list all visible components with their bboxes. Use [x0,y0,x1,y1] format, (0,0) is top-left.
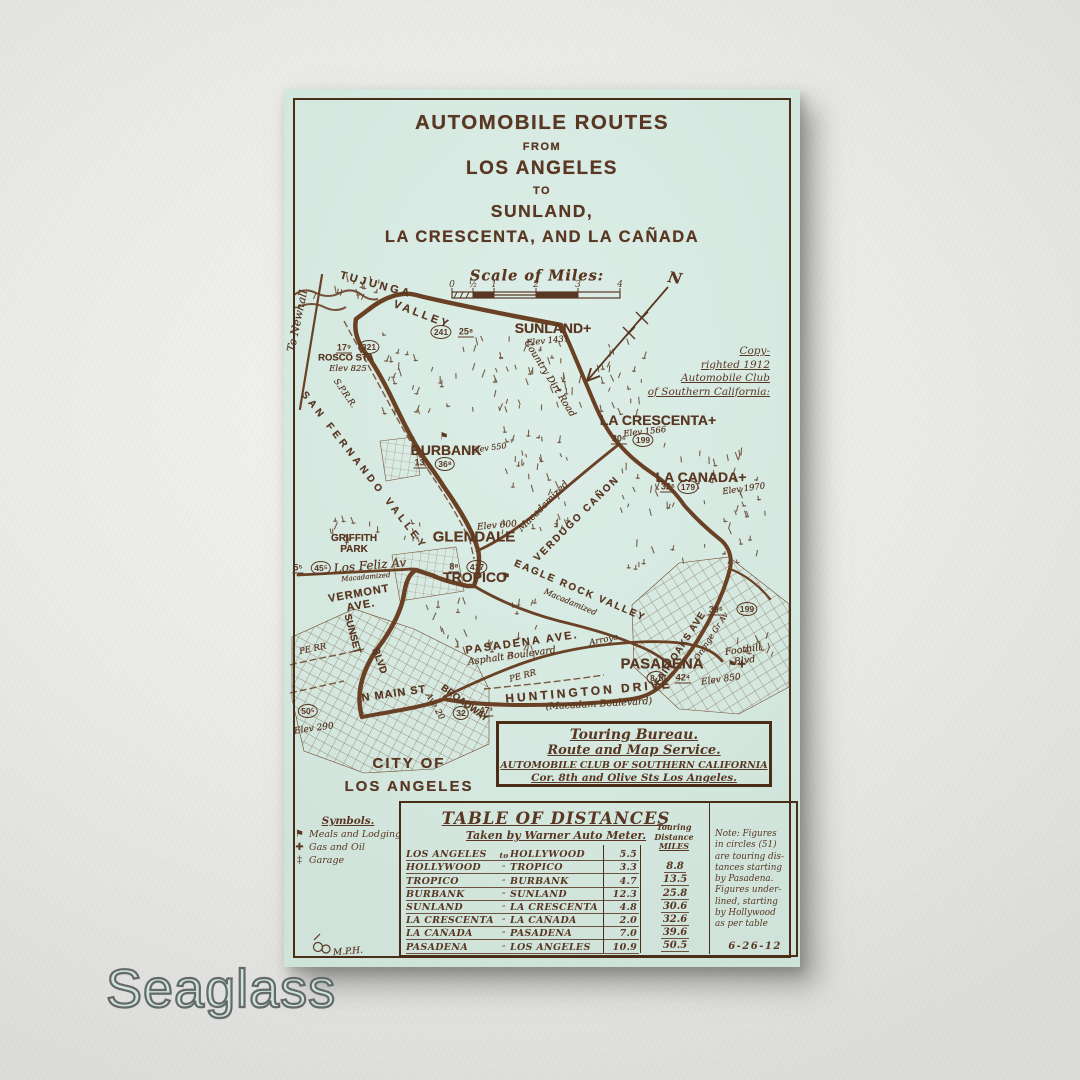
product-photo: AUTOMOBILE ROUTESFROMLOS ANGELESTOSUNLAN… [0,0,1080,1080]
cell-sep: ″ [498,878,510,887]
circled-distance-badge: 179 [677,480,698,494]
cell-from: BURBANK [406,889,498,900]
touring-value: 25.8 [644,888,706,901]
seaglass-watermark: Seaglass [106,958,336,1020]
touring-bureau-box: Touring Bureau.Route and Map Service.AUT… [496,721,772,787]
table-row: HOLLYWOOD″TROPICO3.3 [406,861,639,874]
symbol-item: ✚Gas and Oil [294,842,402,853]
map-panel: AUTOMOBILE ROUTESFROMLOS ANGELESTOSUNLAN… [284,89,800,967]
touring-bureau-line-3: Cor. 8th and Olive Sts Los Angeles. [499,772,769,784]
glendale: GLENDALE [433,530,516,547]
underlined-distance-badge: 39⁶ [708,605,724,616]
tree-cluster [620,443,765,570]
symbol-label: Gas and Oil [309,842,365,853]
scale-tick: 4 [617,280,623,290]
symbol-label: Garage [309,855,344,866]
cell-to: LA CRESCENTA [510,902,607,913]
circled-distance-badge: 321 [358,340,379,354]
title-line-3: TO [284,185,800,197]
copyright-note: Copy-righted 1912Automobile Clubof South… [648,345,770,400]
touring-miles: 25.8 [661,888,689,900]
touring-miles: 8.8 [664,861,685,873]
symbol-item: ‡Garage [294,855,402,866]
cell-to: LA CAÑADA [510,915,607,926]
touring-miles: 39.6 [661,927,689,939]
cell-miles: 2.0 [607,915,637,926]
touring-miles: 50.5 [661,940,689,952]
table-row: TROPICO″BURBANK4.7 [406,874,639,887]
cell-to: PASADENA [510,928,607,939]
table-divider [709,803,710,954]
scale-tick: 0 [449,280,455,290]
touring-distance-column: 8.813.525.830.632.639.650.5 [644,848,706,954]
flag-icon: ⚑ [440,432,449,443]
touring-bureau-line-2: AUTOMOBILE CLUB OF SOUTHERN CALIFORNIA [499,760,769,771]
copyright-line-3: of Southern California: [648,386,770,400]
pasadena: PASADENA [620,657,703,674]
cell-sep: ″ [498,904,510,913]
circled-distance-badge: 199 [736,602,757,616]
flag-icon: ⚑ [728,660,737,671]
touring-value: 13.5 [644,874,706,887]
north-label: N [667,268,684,288]
flag-icon: ⚑ [294,829,305,840]
sunland: SUNLAND+ [515,321,592,337]
tree-cluster [382,333,646,416]
symbols-legend: Symbols. ⚑Meals and Lodging✚Gas and Oil‡… [294,815,402,866]
maker-monogram [314,934,331,953]
cell-sep: ″ [498,891,510,900]
scale-tick: 1 [491,280,497,290]
copyright-line-0: Copy- [648,345,770,359]
underlined-distance-badge: 30⁶ [611,434,627,445]
cell-to: SUNLAND [510,889,607,900]
copyright-line-2: Automobile Club [648,372,770,386]
symbol-label: Meals and Lodging [309,829,401,840]
survey-date: 6-26-12 [715,941,795,952]
circled-distance-badge: 417 [466,560,487,574]
table-row: LOS ANGELEStoHOLLYWOOD5.5 [406,848,639,861]
symbols-title: Symbols. [294,815,402,827]
figures-note: Note: Figures in circles (51) are tourin… [715,829,797,930]
cell-from: TROPICO [406,876,498,887]
cell-miles: 3.3 [607,862,637,873]
distance-table: TABLE OF DISTANCES Taken by Warner Auto … [399,801,798,957]
touring-value: 39.6 [644,927,706,940]
title-line-1: FROM [284,141,800,153]
title-line-5: LA CRESCENTA, AND LA CAÑADA [284,228,800,247]
cell-from: LA CAÑADA [406,928,498,939]
underlined-distance-badge: 17⁹ [336,343,352,354]
touring-miles: 32.6 [661,914,689,926]
title-line-4: SUNLAND, [284,201,800,222]
scale-tick: 2 [533,280,539,290]
touring-value: 8.8 [644,861,706,874]
rosco-elev: Elev 825 [329,365,367,375]
gas-cross-icon: ✚ [294,842,305,853]
flag-icon: ⚑ [502,572,511,583]
touring-bureau-line-1: Route and Map Service. [499,743,769,758]
title-line-0: AUTOMOBILE ROUTES [284,111,800,135]
touring-value: 32.6 [644,914,706,927]
circled-distance-badge: 241 [430,325,451,339]
underlined-distance-badge: 13² [413,458,428,469]
cell-to: LOS ANGELES [510,942,607,953]
circled-distance-badge: 8.1 [647,671,666,685]
scale-tick: 3 [575,280,581,290]
rosco-sta: ROSCO STA [318,354,374,365]
touring-miles: 30.6 [661,901,689,913]
underlined-distance-badge: 8⁸ [448,562,459,573]
circled-distance-badge: 199 [632,433,653,447]
scale-tick: ½ [469,280,478,290]
underlined-distance-badge: 5⁵ [292,563,303,574]
table-row: BURBANK″SUNLAND12.3 [406,888,639,901]
cell-to: TROPICO [510,862,607,873]
cell-sep: to [498,851,510,860]
cell-to: BURBANK [510,876,607,887]
touring-value [644,848,706,861]
symbol-item: ⚑Meals and Lodging [294,829,402,840]
cell-miles: 4.8 [607,902,637,913]
cell-from: PASADENA [406,942,498,953]
touring-bureau-line-0: Touring Bureau. [499,727,769,743]
cell-to: HOLLYWOOD [510,849,607,860]
cell-sep: ″ [498,944,510,953]
underlined-distance-badge: 25⁸ [458,327,474,338]
city-of-los-angeles: CITY OF LOS ANGELES [345,752,474,799]
garage-cross-icon: ‡ [294,855,305,866]
cell-sep: ″ [498,917,510,926]
underlined-distance-badge: 47³ [478,706,493,717]
table-row: LA CRESCENTA″LA CAÑADA2.0 [406,914,639,927]
cell-miles: 12.3 [607,889,637,900]
copyright-line-1: righted 1912 [648,359,770,373]
map-title: AUTOMOBILE ROUTESFROMLOS ANGELESTOSUNLAN… [284,111,800,247]
cell-from: LA CRESCENTA [406,915,498,926]
touring-value: 50.5 [644,940,706,953]
symbols-items: ⚑Meals and Lodging✚Gas and Oil‡Garage [294,829,402,866]
underlined-distance-badge: 42⁴ [675,673,691,684]
cell-from: HOLLYWOOD [406,862,498,873]
table-rows: LOS ANGELEStoHOLLYWOOD5.5HOLLYWOOD″TROPI… [406,848,639,954]
cell-from: LOS ANGELES [406,849,498,860]
cell-miles: 10.9 [607,942,637,953]
table-divider [640,845,641,953]
touring-miles: 13.5 [661,874,689,886]
cell-miles: 4.7 [607,876,637,887]
cell-miles: 7.0 [607,928,637,939]
cell-sep: ″ [498,930,510,939]
griffith-park: GRIFFITH PARK [331,533,377,555]
table-row: SUNLAND″LA CRESCENTA4.8 [406,901,639,914]
touring-value: 30.6 [644,901,706,914]
cell-sep: ″ [498,864,510,873]
gas-cross-icon: ✚ [738,660,746,671]
cell-miles: 5.5 [607,849,637,860]
title-line-2: LOS ANGELES [284,158,800,180]
table-row: PASADENA″LOS ANGELES10.9 [406,940,639,953]
cell-from: SUNLAND [406,902,498,913]
underlined-distance-badge: 32⁶ [660,482,676,493]
table-row: LA CAÑADA″PASADENA7.0 [406,927,639,940]
